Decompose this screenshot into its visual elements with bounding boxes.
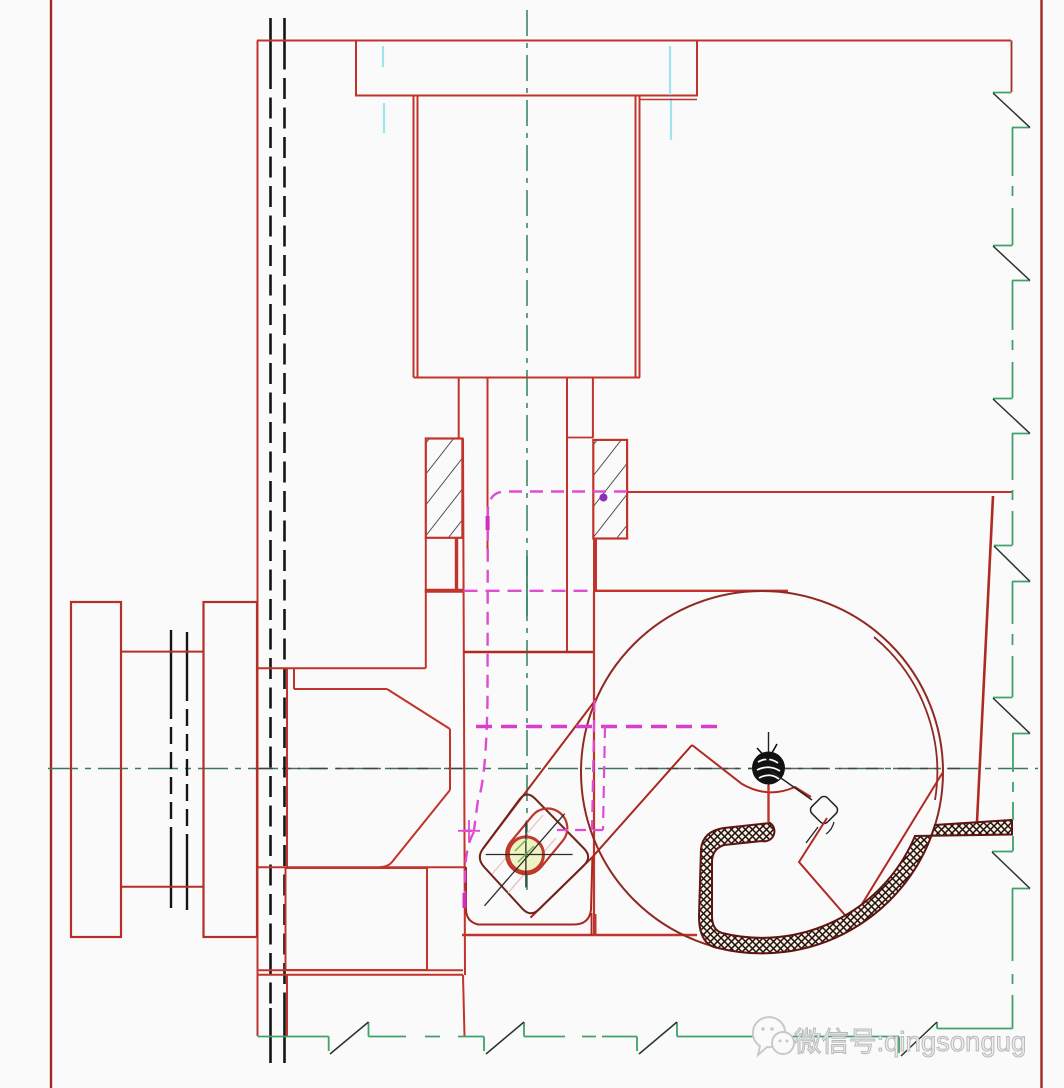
- svg-text:微信号:qingsongug: 微信号:qingsongug: [794, 1026, 1026, 1057]
